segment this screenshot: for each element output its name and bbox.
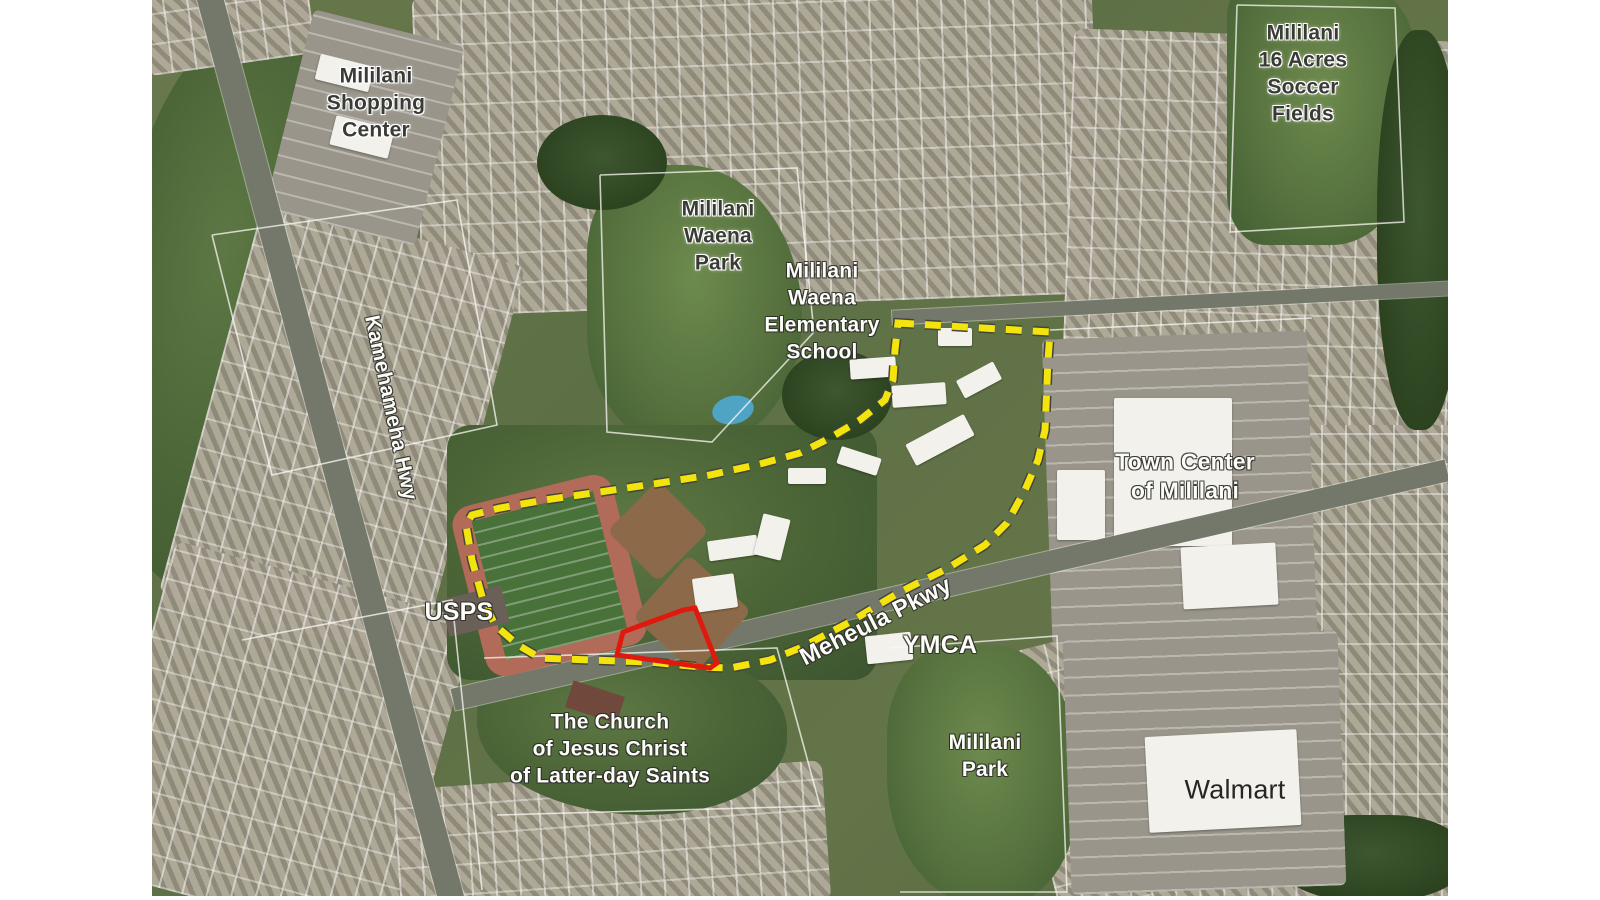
- label-mililani-16-acres-soccer-fields: Mililani 16 Acres Soccer Fields: [1259, 20, 1347, 128]
- label-church-of-jesus-christ: The Church of Jesus Christ of Latter-day…: [510, 710, 710, 791]
- right-margin: [1448, 0, 1600, 900]
- school-building: [956, 361, 1002, 398]
- school-building: [938, 328, 972, 346]
- page-canvas: Mililani Shopping Center Mililani Waena …: [0, 0, 1600, 900]
- school-building: [905, 414, 975, 466]
- forest-patch: [1377, 30, 1448, 430]
- school-building: [692, 573, 738, 613]
- town-center-building: [1180, 543, 1278, 610]
- forest-patch: [537, 115, 667, 210]
- label-mililani-park: Mililani Park: [949, 730, 1022, 784]
- school-building: [891, 382, 946, 408]
- label-ymca: YMCA: [903, 629, 977, 661]
- label-mililani-shopping-center: Mililani Shopping Center: [327, 64, 425, 145]
- label-town-center-of-mililani: Town Center of Mililani: [1115, 448, 1255, 507]
- label-walmart: Walmart: [1185, 773, 1286, 808]
- town-center-building: [1057, 470, 1105, 540]
- satellite-map[interactable]: Mililani Shopping Center Mililani Waena …: [152, 0, 1448, 896]
- label-usps: USPS: [425, 596, 494, 628]
- left-margin: [0, 0, 152, 900]
- label-mililani-waena-elementary-school: Mililani Waena Elementary School: [764, 258, 879, 366]
- label-mililani-waena-park: Mililani Waena Park: [682, 197, 755, 278]
- school-building: [788, 468, 826, 484]
- bottom-margin: [0, 896, 1600, 900]
